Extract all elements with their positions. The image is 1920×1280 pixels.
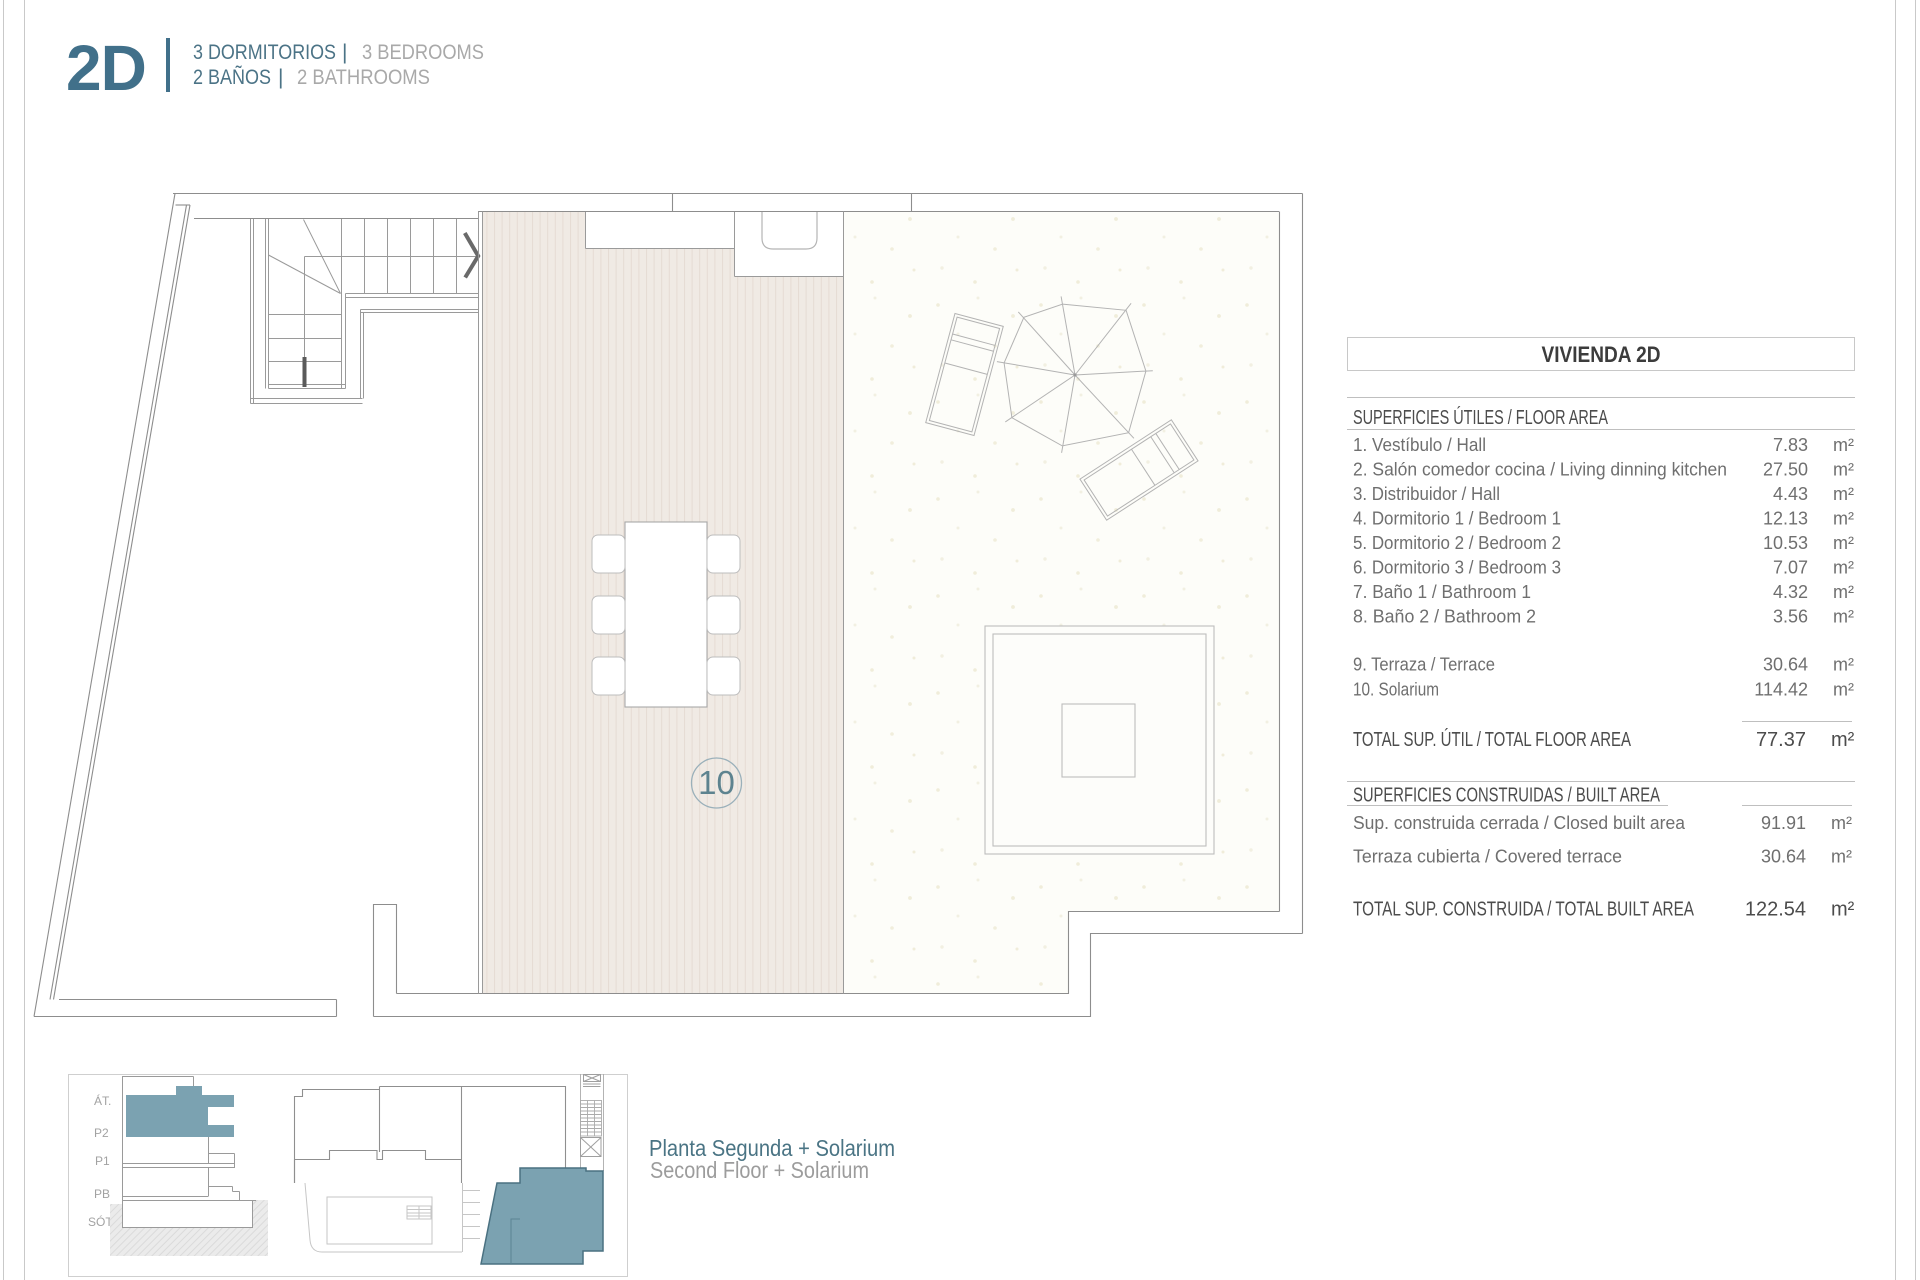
svg-text:2. Salón comedor cocina / Livi: 2. Salón comedor cocina / Living dinning… — [1353, 460, 1727, 480]
svg-text:m²: m² — [1833, 533, 1854, 553]
svg-text:2 BATHROOMS: 2 BATHROOMS — [297, 66, 430, 89]
svg-text:10: 10 — [698, 764, 735, 801]
svg-text:27.50: 27.50 — [1763, 460, 1808, 480]
svg-text:7.07: 7.07 — [1773, 558, 1808, 578]
svg-text:2 BAÑOS: 2 BAÑOS — [193, 65, 271, 89]
svg-text:7. Baño 1 / Bathroom 1: 7. Baño 1 / Bathroom 1 — [1353, 582, 1531, 602]
svg-text:m²: m² — [1831, 899, 1855, 921]
svg-text:Terraza cubierta / Covered ter: Terraza cubierta / Covered terrace — [1353, 847, 1622, 867]
svg-text:4.32: 4.32 — [1773, 582, 1808, 602]
svg-text:m²: m² — [1833, 435, 1854, 455]
svg-text:8. Baño 2 / Bathroom 2: 8. Baño 2 / Bathroom 2 — [1353, 607, 1536, 627]
svg-text:3 BEDROOMS: 3 BEDROOMS — [362, 41, 484, 64]
svg-text:P2: P2 — [94, 1126, 109, 1140]
svg-text:5. Dormitorio 2 / Bedroom 2: 5. Dormitorio 2 / Bedroom 2 — [1353, 533, 1561, 553]
svg-text:SUPERFICIES ÚTILES / FLOOR ARE: SUPERFICIES ÚTILES / FLOOR AREA — [1353, 406, 1608, 429]
svg-text:m²: m² — [1831, 813, 1852, 833]
svg-text:m²: m² — [1833, 680, 1854, 700]
svg-text:10.53: 10.53 — [1763, 533, 1808, 553]
svg-text:m²: m² — [1833, 558, 1854, 578]
svg-text:m²: m² — [1833, 509, 1854, 529]
svg-text:2D: 2D — [66, 32, 146, 104]
svg-text:10. Solarium: 10. Solarium — [1353, 680, 1439, 700]
svg-text:4.43: 4.43 — [1773, 484, 1808, 504]
svg-text:m²: m² — [1831, 729, 1855, 751]
svg-text:|: | — [342, 41, 347, 64]
svg-text:TOTAL SUP. ÚTIL / TOTAL FLOOR: TOTAL SUP. ÚTIL / TOTAL FLOOR AREA — [1353, 728, 1631, 751]
svg-text:30.64: 30.64 — [1761, 847, 1806, 867]
svg-text:Sup. construida cerrada / Clos: Sup. construida cerrada / Closed built a… — [1353, 813, 1686, 833]
svg-text:9. Terraza / Terrace: 9. Terraza / Terrace — [1353, 655, 1495, 675]
svg-text:P1: P1 — [95, 1154, 110, 1168]
svg-text:12.13: 12.13 — [1763, 509, 1808, 529]
svg-text:PB: PB — [94, 1187, 110, 1201]
svg-text:VIVIENDA 2D: VIVIENDA 2D — [1542, 342, 1661, 367]
svg-text:SUPERFICIES CONSTRUIDAS / BUIL: SUPERFICIES CONSTRUIDAS / BUILT AREA — [1353, 785, 1660, 807]
svg-text:m²: m² — [1833, 582, 1854, 602]
svg-text:3.56: 3.56 — [1773, 607, 1808, 627]
svg-text:|: | — [278, 66, 283, 89]
svg-text:m²: m² — [1833, 607, 1854, 627]
svg-text:m²: m² — [1833, 655, 1854, 675]
svg-text:TOTAL SUP. CONSTRUIDA / TOTAL: TOTAL SUP. CONSTRUIDA / TOTAL BUILT AREA — [1353, 899, 1695, 921]
svg-text:6. Dormitorio 3 / Bedroom 3: 6. Dormitorio 3 / Bedroom 3 — [1353, 558, 1561, 578]
svg-text:7.83: 7.83 — [1773, 435, 1808, 455]
svg-text:m²: m² — [1833, 460, 1854, 480]
svg-text:m²: m² — [1833, 484, 1854, 504]
svg-text:91.91: 91.91 — [1761, 813, 1806, 833]
svg-text:122.54: 122.54 — [1745, 899, 1806, 921]
svg-text:m²: m² — [1831, 847, 1852, 867]
svg-text:114.42: 114.42 — [1754, 680, 1808, 700]
svg-text:Second Floor + Solarium: Second Floor + Solarium — [650, 1157, 869, 1183]
svg-text:3 DORMITORIOS: 3 DORMITORIOS — [193, 41, 336, 64]
svg-text:3. Distribuidor / Hall: 3. Distribuidor / Hall — [1353, 484, 1500, 504]
svg-text:ÁT.: ÁT. — [94, 1093, 111, 1108]
svg-text:77.37: 77.37 — [1756, 729, 1806, 751]
svg-text:1. Vestíbulo / Hall: 1. Vestíbulo / Hall — [1353, 435, 1486, 455]
svg-text:4. Dormitorio 1 / Bedroom 1: 4. Dormitorio 1 / Bedroom 1 — [1353, 509, 1561, 529]
svg-text:30.64: 30.64 — [1763, 655, 1808, 675]
